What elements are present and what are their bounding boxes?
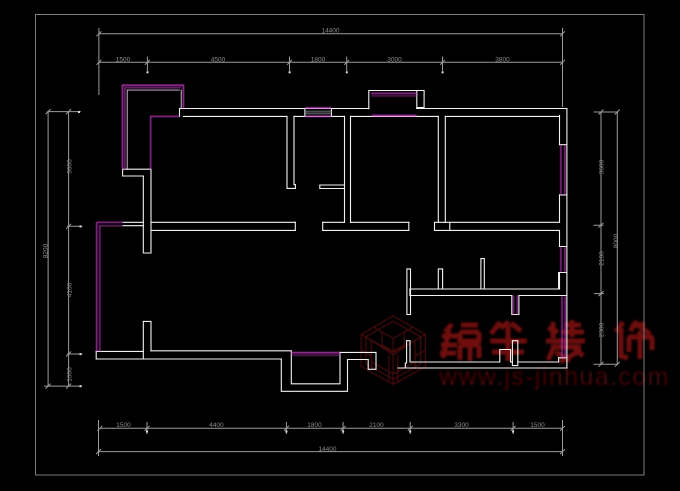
svg-text:14400: 14400 [321, 27, 339, 34]
svg-text:2100: 2100 [369, 422, 384, 429]
svg-text:8200: 8200 [43, 243, 50, 258]
svg-text:3800: 3800 [495, 56, 510, 63]
svg-text:1500: 1500 [116, 56, 131, 63]
svg-text:1500: 1500 [530, 422, 545, 429]
svg-text:4100: 4100 [67, 282, 74, 297]
svg-text:4400: 4400 [209, 422, 224, 429]
svg-text:4500: 4500 [211, 56, 226, 63]
svg-text:2100: 2100 [599, 251, 606, 266]
svg-text:2300: 2300 [599, 322, 606, 337]
svg-text:8000: 8000 [613, 233, 620, 248]
svg-text:1800: 1800 [311, 56, 326, 63]
svg-text:1000: 1000 [67, 367, 74, 382]
svg-text:1800: 1800 [307, 422, 322, 429]
svg-text:3300: 3300 [454, 422, 469, 429]
svg-text:www.js-jinhua.com: www.js-jinhua.com [438, 363, 670, 391]
svg-text:1500: 1500 [116, 422, 131, 429]
svg-text:3600: 3600 [67, 159, 74, 174]
svg-text:3600: 3600 [599, 159, 606, 174]
svg-text:3000: 3000 [387, 56, 402, 63]
svg-text:14400: 14400 [318, 446, 336, 453]
